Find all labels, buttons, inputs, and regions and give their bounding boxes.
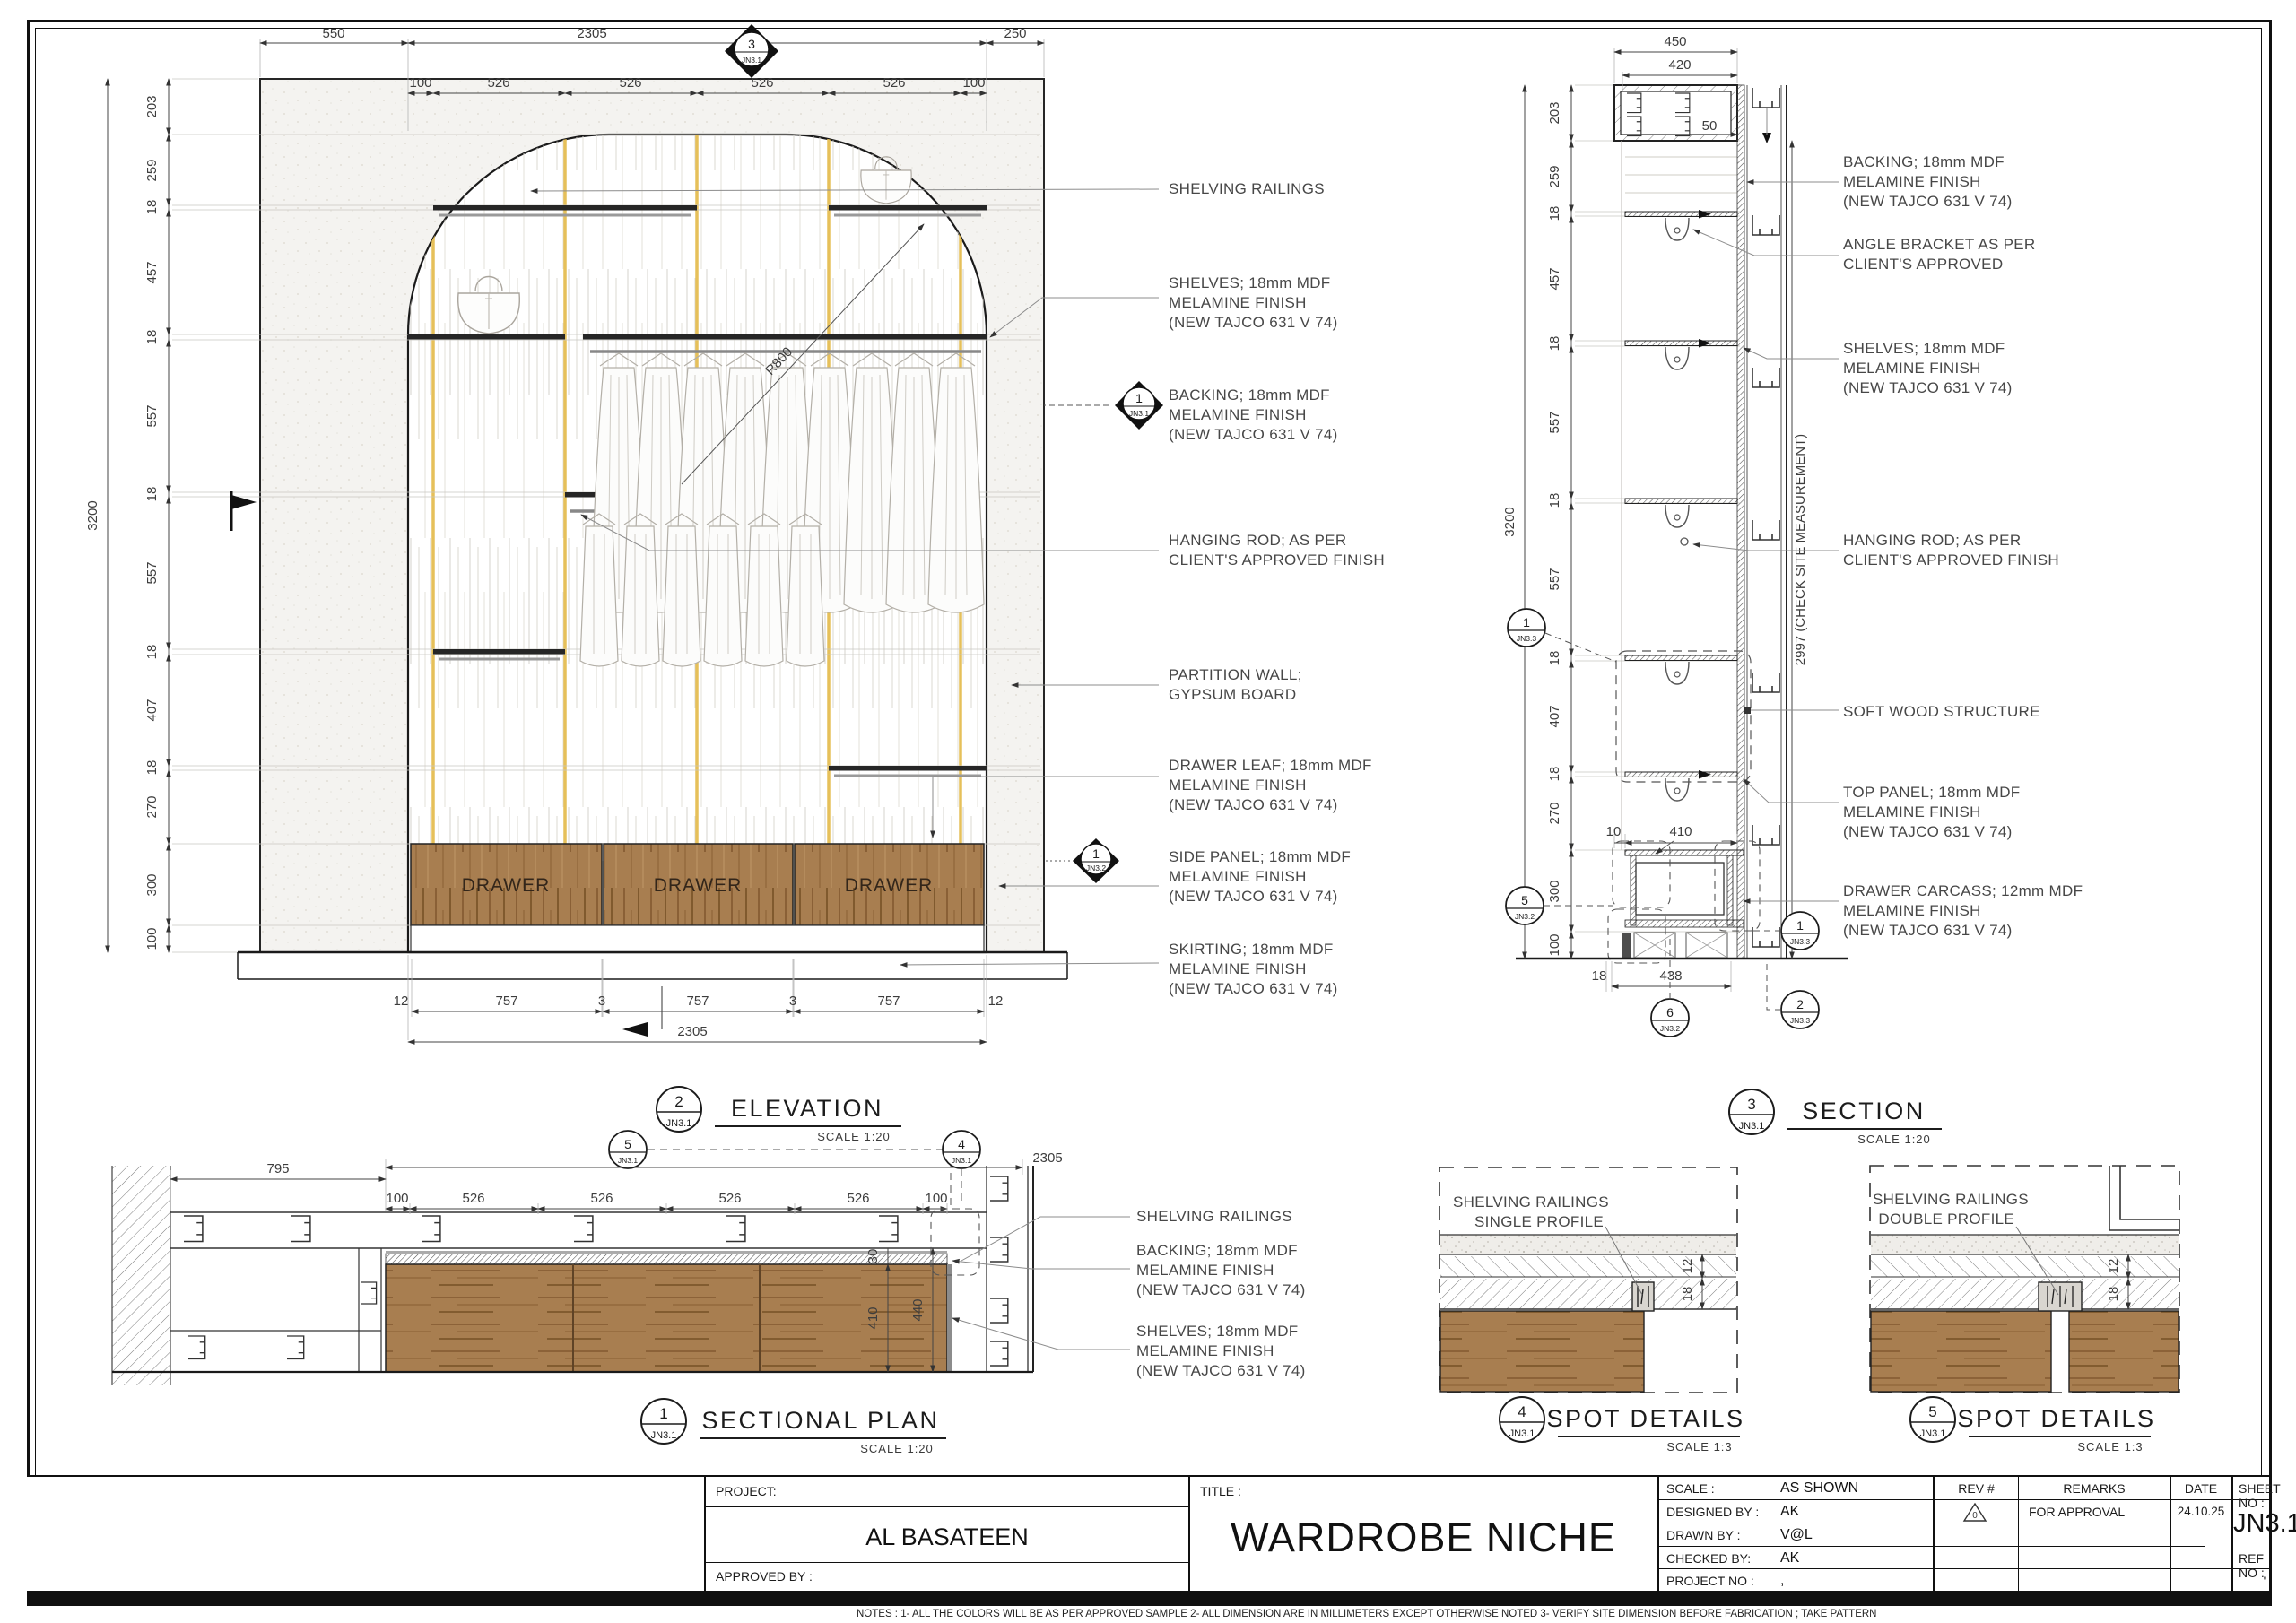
ref-no-mark: ' [2233,1574,2296,1588]
dim-label: 757 [686,994,709,1009]
dim-label: 526 [590,1191,613,1206]
dim-label: 526 [751,75,773,91]
drawer-front: DRAWER DRAWER DRAWER [411,844,984,925]
svg-text:5: 5 [624,1137,631,1151]
dim-label: 18 [2106,1287,2121,1302]
checked-by-label: CHECKED BY: [1666,1551,1751,1566]
project-no-value: , [1780,1573,1784,1589]
svg-text:1: 1 [1796,918,1804,933]
annotation-plan-shelves: SHELVES; 18mm MDFMELAMINE FINISH(NEW TAJ… [1136,1322,1306,1381]
drawn-by-label: DRAWN BY : [1666,1528,1740,1542]
dim-label: 12 [988,994,1004,1009]
svg-text:JN3.3: JN3.3 [1790,1016,1810,1025]
dim-label: 3200 [85,500,100,530]
dim-label: 12 [2106,1259,2121,1274]
project-no-label: PROJECT NO : [1666,1574,1754,1588]
dim-label: 457 [1547,267,1562,290]
date-header: DATE [2170,1481,2231,1496]
svg-text:1: 1 [1523,615,1530,629]
annotation-drawer-carcass: DRAWER CARCASS; 12mm MDFMELAMINE FINISH(… [1843,881,2083,941]
dim-label: 270 [1547,802,1562,824]
remarks-value: FOR APPROVAL [2029,1505,2125,1519]
dim-label: 18 [1547,336,1562,352]
dim-label: 450 [1664,34,1686,49]
svg-text:ELEVATION: ELEVATION [731,1095,883,1122]
dim-label: 10 [1606,824,1622,839]
project-value: AL BASATEEN [704,1523,1190,1551]
dim-label: 2997 (CHECK SITE MEASUREMENT) [1793,434,1808,665]
project-label: PROJECT: [716,1484,777,1498]
svg-text:JN3.3: JN3.3 [1790,937,1810,946]
approved-by-label: APPROVED BY : [716,1569,813,1584]
dim-label: 18 [144,645,160,660]
svg-text:JN3.1: JN3.1 [742,56,761,65]
spot5-label: SHELVING RAILINGSDOUBLE PROFILE [1873,1190,2014,1229]
elevation-drawing: R800 DRAWER DRAWER DRAWER [85,24,1163,1143]
dim-label: 526 [462,1191,484,1206]
svg-text:JN3.1: JN3.1 [1509,1428,1535,1439]
title-block: PROJECT: AL BASATEEN APPROVED BY : TITLE… [27,1475,2269,1591]
svg-text:JN3.1: JN3.1 [666,1118,692,1129]
dim-label: 300 [1547,880,1562,902]
annotation-plan-backing: BACKING; 18mm MDFMELAMINE FINISH(NEW TAJ… [1136,1241,1306,1300]
svg-text:2: 2 [1796,997,1804,1011]
dim-label: 440 [910,1298,926,1321]
dim-label: 407 [144,699,160,721]
sheet-no-header: SHEET NO : [2239,1481,2280,1510]
dim-label: 410 [1669,824,1692,839]
dim-label: 457 [144,261,160,283]
annotation-side-panel: SIDE PANEL; 18mm MDFMELAMINE FINISH(NEW … [1169,847,1351,907]
dim-label: 2305 [577,26,606,41]
dim-label: 100 [144,927,160,950]
svg-text:5: 5 [1928,1403,1936,1420]
svg-text:SCALE 1:3: SCALE 1:3 [1666,1440,1732,1454]
annotation-drawer-leaf: DRAWER LEAF; 18mm MDFMELAMINE FINISH(NEW… [1169,756,1372,815]
dim-label: 100 [1547,933,1562,956]
dim-label: 259 [1547,165,1562,187]
dim-label: 526 [619,75,641,91]
dim-label: 407 [1547,705,1562,727]
wall-studs [1752,88,1779,947]
spot4-title: 4 JN3.1 SPOT DETAILS SCALE 1:3 [1500,1397,1745,1454]
dim-label: 557 [144,561,160,584]
section-title: 3 JN3.1 SECTION SCALE 1:20 [1729,1089,1942,1146]
annotation-top-panel: TOP PANEL; 18mm MDFMELAMINE FINISH(NEW T… [1843,783,2020,842]
rev-triangle-icon: 0 [1962,1502,1987,1528]
svg-text:SECTION: SECTION [1802,1098,1926,1124]
dim-label: 18 [144,200,160,215]
dim-label: 526 [883,75,905,91]
dim-label: 550 [322,26,344,41]
dim-label: 18 [1547,767,1562,782]
elevation-title: 2 JN3.1 ELEVATION SCALE 1:20 [657,1087,901,1143]
dim-label: 300 [144,873,160,896]
dim-label: 18 [1592,968,1607,984]
svg-text:JN3.2: JN3.2 [1660,1024,1680,1033]
dim-label: 420 [1668,57,1691,73]
annotation-sec-hanging-rod: HANGING ROD; AS PERCLIENT'S APPROVED FIN… [1843,531,2059,570]
callout-1-jn31: 1 JN3.1 [1115,381,1163,430]
annotation-shelving-railings: SHELVING RAILINGS [1169,179,1325,199]
svg-text:2: 2 [674,1093,683,1110]
scale-value: AS SHOWN [1780,1480,1858,1497]
dim-label: 3 [789,994,796,1009]
title-label: TITLE : [1200,1484,1241,1498]
dim-label: 18 [1547,493,1562,508]
dim-label: 203 [144,95,160,117]
notes-strip: NOTES : 1- ALL THE COLORS WILL BE AS PER… [857,1609,2256,1619]
dim-label: 100 [409,75,431,91]
spot4-label: SHELVING RAILINGSSINGLE PROFILE [1453,1193,1604,1232]
svg-text:JN3.1: JN3.1 [1739,1121,1765,1132]
remarks-header: REMARKS [2018,1481,2170,1496]
dim-label: 526 [847,1191,869,1206]
dim-label: 250 [1004,26,1026,41]
svg-text:JN3.2: JN3.2 [1086,864,1106,872]
dim-label: 270 [144,795,160,818]
sheet-title: WARDROBE NICHE [1190,1515,1657,1561]
svg-text:5: 5 [1521,893,1528,907]
dim-label: 526 [487,75,509,91]
annotation-skirting: SKIRTING; 18mm MDFMELAMINE FINISH(NEW TA… [1169,940,1338,999]
svg-text:1: 1 [659,1405,667,1422]
annotation-backing: BACKING; 18mm MDFMELAMINE FINISH(NEW TAJ… [1169,386,1338,445]
dim-label: 410 [865,1306,881,1329]
svg-text:4: 4 [1518,1403,1526,1420]
svg-text:3: 3 [748,37,755,51]
svg-text:1: 1 [1092,846,1100,861]
svg-text:JN3.3: JN3.3 [1517,634,1536,643]
callout-1-jn32: 1 JN3.2 [1073,838,1119,883]
svg-text:JN3.2: JN3.2 [1515,912,1535,921]
dim-label: 30 [865,1249,881,1264]
dim-label: 12 [1680,1259,1695,1274]
dim-label: 757 [495,994,517,1009]
annotation-soft-wood: SOFT WOOD STRUCTURE [1843,702,2040,722]
sheet-number: JN3.1 [2233,1509,2296,1539]
dim-label: 12 [394,994,409,1009]
dim-label: 557 [1547,568,1562,590]
checked-by-value: AK [1780,1550,1799,1567]
plan-title: 1 JN3.1 SECTIONAL PLAN SCALE 1:20 [641,1399,946,1455]
spot5-title: 5 JN3.1 SPOT DETAILS SCALE 1:3 [1910,1397,2156,1454]
dim-label: 18 [1547,206,1562,221]
dim-label: 203 [1547,101,1562,124]
annotation-partition-wall: PARTITION WALL;GYPSUM BOARD [1169,665,1302,705]
annotation-plan-railings: SHELVING RAILINGS [1136,1207,1292,1227]
svg-text:SCALE 1:20: SCALE 1:20 [817,1130,891,1143]
dim-label: 18 [144,487,160,502]
dim-label: 18 [1680,1287,1695,1302]
annotation-sec-backing: BACKING; 18mm MDFMELAMINE FINISH(NEW TAJ… [1843,152,2013,212]
date-value: 24.10.25 [2170,1505,2231,1518]
dim-label: 100 [962,75,985,91]
rev-header: REV # [1935,1481,2018,1496]
dim-label: 557 [1547,411,1562,433]
annotation-hanging-rod: HANGING ROD; AS PERCLIENT'S APPROVED FIN… [1169,531,1385,570]
dim-label: 18 [144,760,160,776]
svg-text:JN3.1: JN3.1 [1920,1428,1946,1439]
svg-text:SPOT DETAILS: SPOT DETAILS [1546,1405,1744,1432]
svg-text:SCALE 1:3: SCALE 1:3 [2077,1440,2143,1454]
designed-by-label: DESIGNED BY : [1666,1505,1759,1519]
svg-text:SPOT DETAILS: SPOT DETAILS [1957,1405,2155,1432]
scale-label: SCALE : [1666,1481,1715,1496]
svg-text:SCALE 1:20: SCALE 1:20 [860,1442,934,1455]
svg-text:6: 6 [1666,1005,1674,1020]
svg-text:JN3.1: JN3.1 [1129,409,1149,418]
svg-text:0: 0 [1972,1511,1978,1521]
dim-label: 438 [1659,968,1682,984]
annotation-angle-bracket: ANGLE BRACKET AS PERCLIENT'S APPROVED [1843,235,2035,274]
dim-label: 3200 [1502,507,1518,536]
svg-text:SCALE 1:20: SCALE 1:20 [1857,1133,1931,1146]
dim-label: 18 [144,330,160,345]
dim-label: 2305 [1032,1150,1062,1166]
dim-label: 557 [144,404,160,427]
dim-label: 526 [718,1191,741,1206]
dim-label: 795 [266,1161,289,1176]
dim-label: 100 [386,1191,408,1206]
dim-label: 18 [1547,651,1562,666]
dim-label: 259 [144,159,160,181]
dim-label: 3 [598,994,605,1009]
annotation-sec-shelves: SHELVES; 18mm MDFMELAMINE FINISH(NEW TAJ… [1843,339,2013,398]
drawing-sheet: R800 DRAWER DRAWER DRAWER [0,0,2296,1623]
drawer-label: DRAWER [462,875,551,896]
dim-label: 2305 [677,1024,707,1039]
svg-text:JN3.1: JN3.1 [952,1156,971,1165]
drawer-label: DRAWER [654,875,743,896]
svg-text:JN3.1: JN3.1 [618,1156,638,1165]
svg-text:SECTIONAL PLAN: SECTIONAL PLAN [701,1407,939,1434]
drawn-by-value: V@L [1780,1527,1813,1543]
dim-label: 50 [1702,118,1718,134]
dim-label: 757 [877,994,900,1009]
svg-text:4: 4 [958,1137,965,1151]
plan-drawing: 795 2305 100 526 526 526 526 100 30 [112,1131,1130,1455]
designed-by-value: AK [1780,1504,1799,1520]
plan-studs [184,1216,898,1242]
callout-3-jn31: 3 JN3.1 [725,24,778,78]
drawer-label: DRAWER [845,875,934,896]
svg-text:JN3.1: JN3.1 [651,1430,677,1441]
annotation-shelves: SHELVES; 18mm MDFMELAMINE FINISH(NEW TAJ… [1169,273,1338,333]
svg-text:3: 3 [1747,1096,1755,1113]
dim-label: 100 [925,1191,947,1206]
svg-text:1: 1 [1135,391,1143,405]
